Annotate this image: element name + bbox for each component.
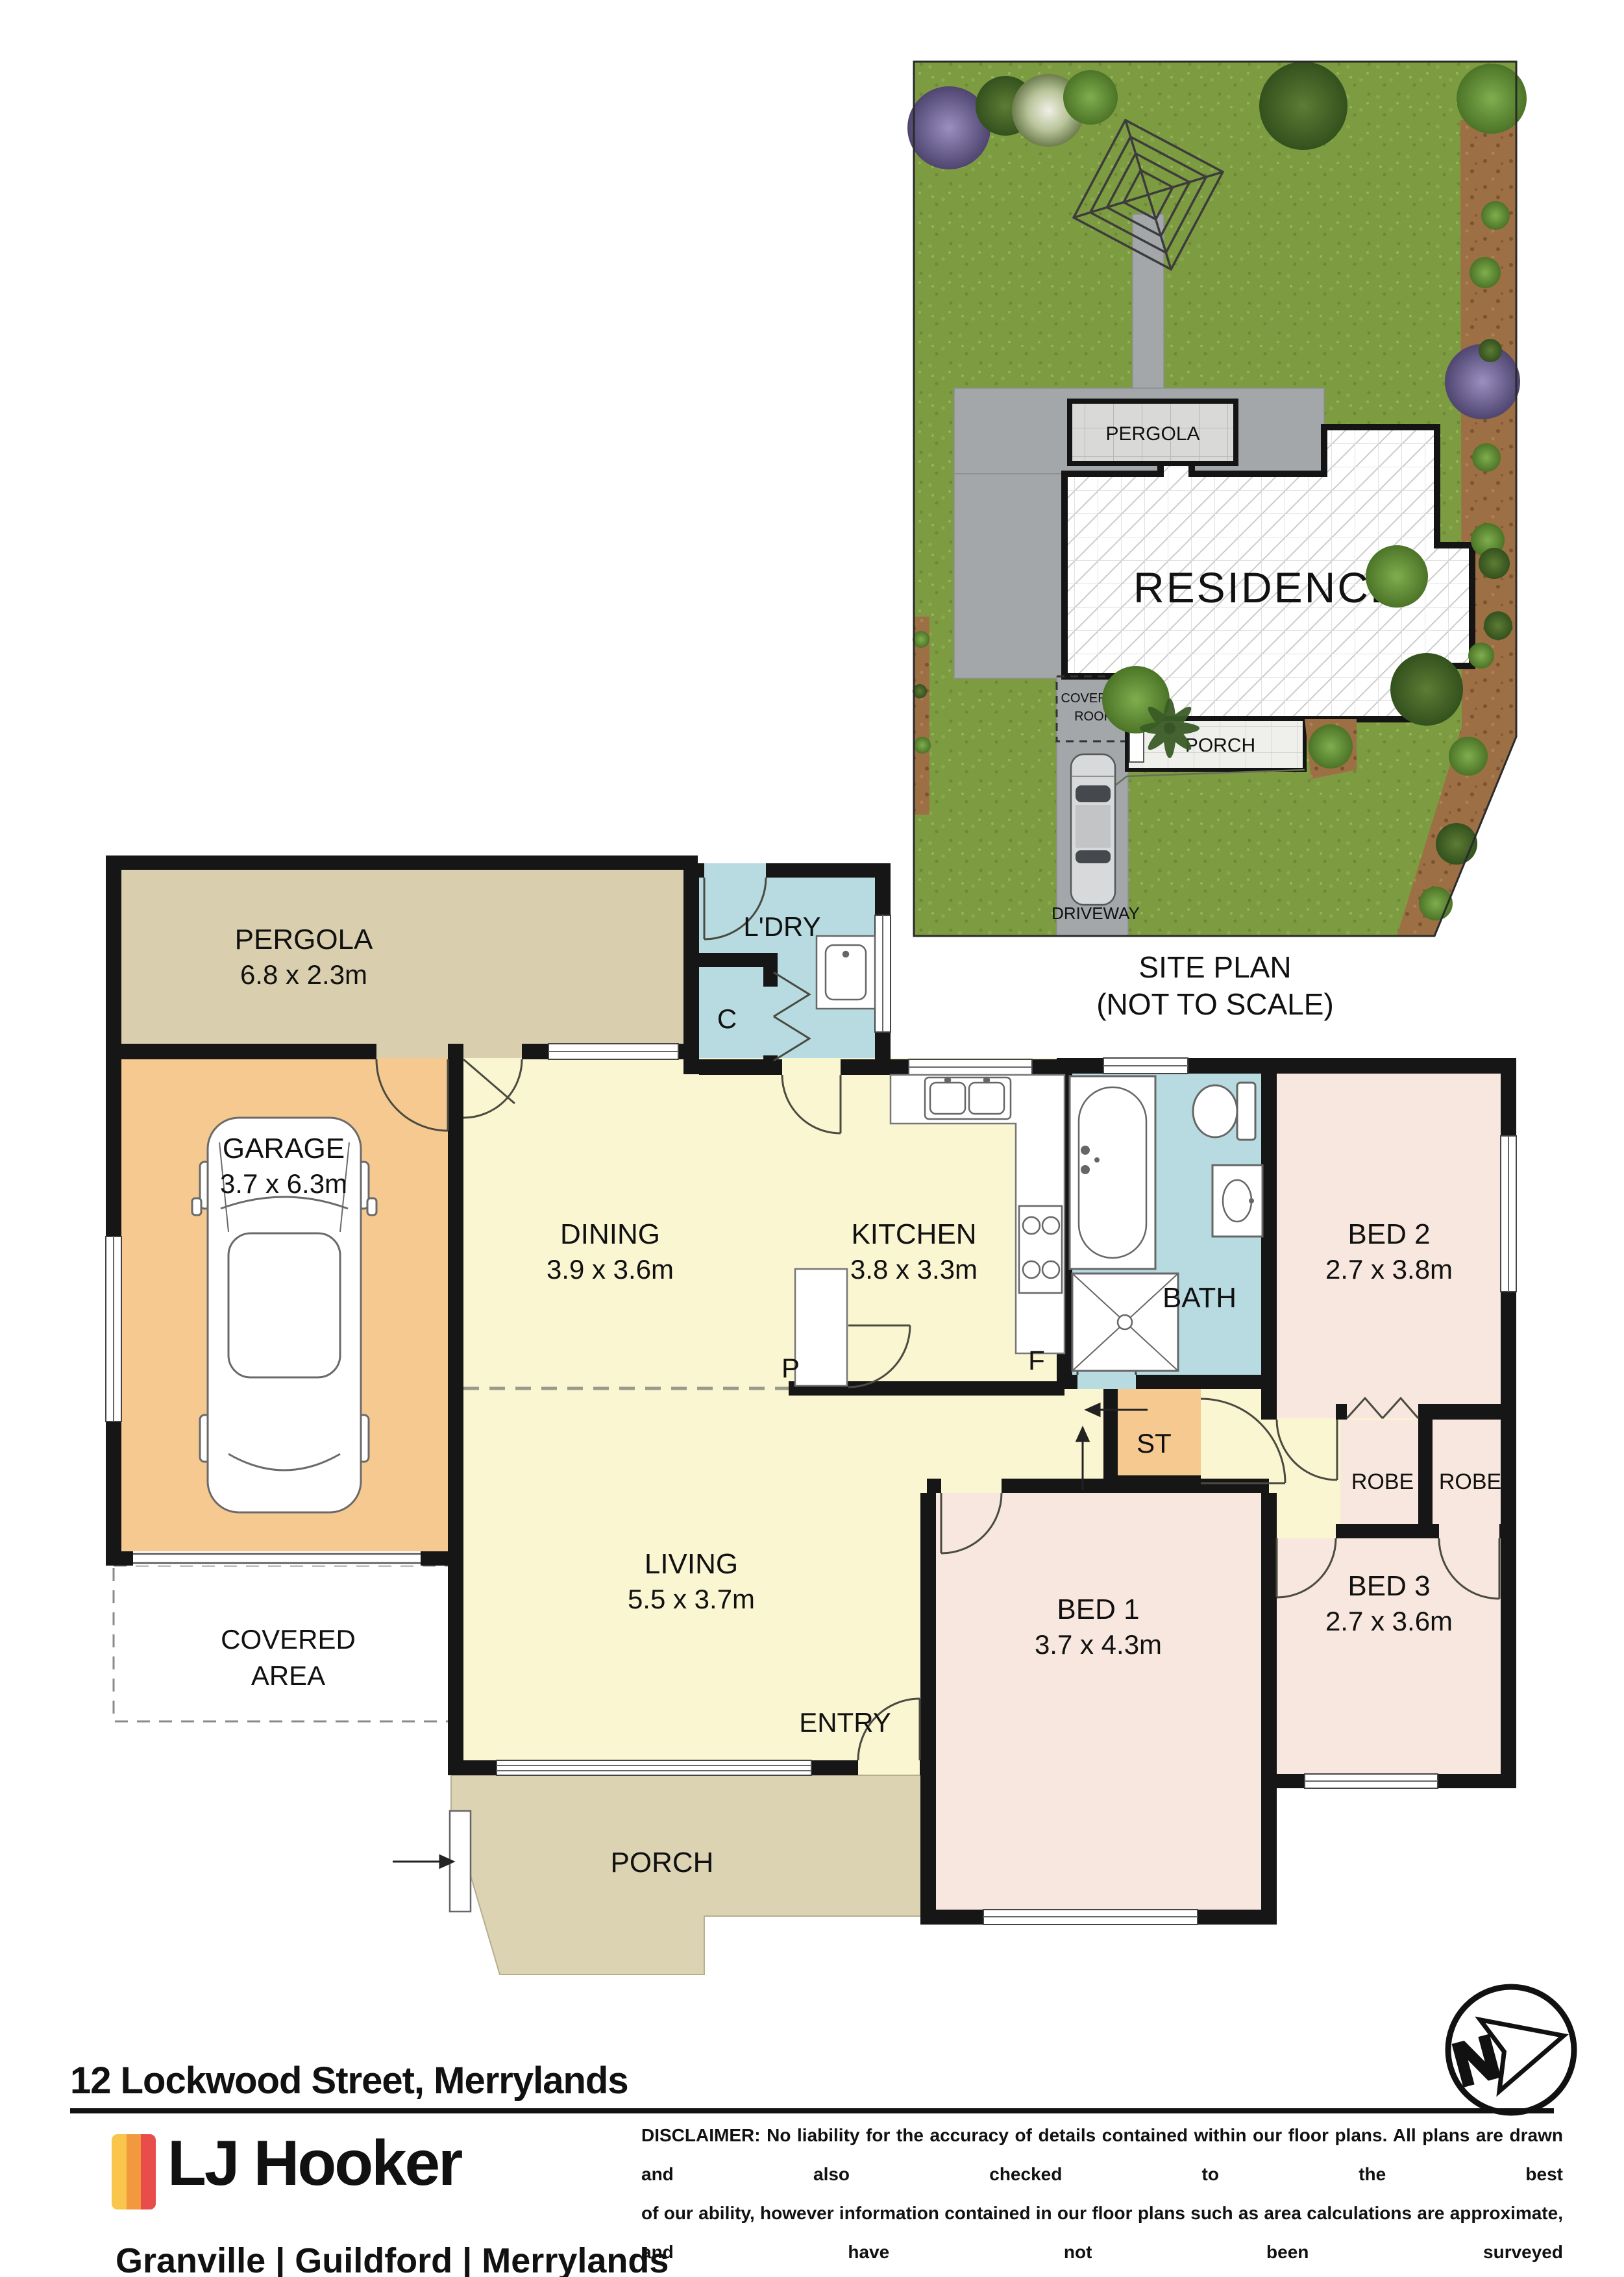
label-bath: BATH — [1163, 1282, 1236, 1314]
vanity-icon — [1212, 1165, 1262, 1237]
floorplan-page: PERGOLA RESIDENCE COVERED ROOF PORCH DRI… — [0, 0, 1624, 2277]
label-storage: ST — [1137, 1428, 1172, 1459]
label-garage-dims: 3.7 x 6.3m — [220, 1168, 347, 1199]
label-dining-dims: 3.9 x 3.6m — [547, 1254, 674, 1285]
label-living-dims: 5.5 x 3.7m — [628, 1584, 755, 1614]
logo-stripe-orange — [127, 2134, 141, 2209]
site-plan-caption-1: SITE PLAN — [1138, 950, 1291, 984]
disclaimer-text: DISCLAIMER: No liability for the accurac… — [641, 2116, 1563, 2277]
label-living: LIVING — [645, 1548, 738, 1580]
label-fridge: F — [1028, 1345, 1045, 1375]
brand-name: LJ Hooker — [167, 2126, 461, 2200]
label-porch: PORCH — [611, 1847, 714, 1878]
site-driveway-label: DRIVEWAY — [1052, 904, 1140, 923]
label-cupboard: C — [717, 1003, 737, 1034]
site-porch-label: PORCH — [1185, 735, 1255, 756]
site-plan: PERGOLA RESIDENCE COVERED ROOF PORCH DRI… — [907, 62, 1527, 1021]
tree-icon — [1390, 653, 1463, 726]
label-covered-1: COVERED — [221, 1624, 356, 1655]
disclaimer-line: DISCLAIMER: No liability for the accurac… — [641, 2116, 1563, 2194]
ljhooker-logo-icon — [112, 2134, 156, 2209]
label-bed1-dims: 3.7 x 4.3m — [1035, 1629, 1162, 1660]
page-title: 12 Lockwood Street, Merrylands — [70, 2059, 628, 2102]
label-dining: DINING — [560, 1218, 660, 1250]
logo-stripe-red — [141, 2134, 156, 2209]
site-pergola-label: PERGOLA — [1105, 423, 1200, 445]
plan-drawing: PERGOLA RESIDENCE COVERED ROOF PORCH DRI… — [0, 0, 1624, 2277]
tree-icon — [1063, 70, 1118, 125]
kitchen-sink-icon — [925, 1077, 1011, 1119]
tree-icon — [1366, 545, 1428, 608]
label-garage: GARAGE — [223, 1133, 345, 1164]
divider-rule — [70, 2108, 1554, 2113]
label-bed2-dims: 2.7 x 3.8m — [1325, 1254, 1453, 1285]
palm-tree-icon — [1140, 698, 1200, 758]
bathtub-icon — [1070, 1076, 1155, 1269]
laundry-tub-icon — [817, 936, 875, 1009]
label-covered-2: AREA — [251, 1660, 325, 1691]
label-pergola-dims: 6.8 x 2.3m — [240, 959, 367, 990]
room-bed1 — [927, 1493, 1269, 1925]
label-entry: ENTRY — [799, 1707, 891, 1738]
label-robe2: ROBE — [1439, 1470, 1501, 1494]
disclaimer-line: of our ability, however information cont… — [641, 2194, 1563, 2272]
north-compass-icon: N — [1446, 1987, 1574, 2113]
label-pergola: PERGOLA — [235, 924, 373, 955]
logo-stripe-yellow — [112, 2134, 127, 2209]
site-residence-label: RESIDENCE — [1133, 563, 1401, 611]
label-robe1: ROBE — [1351, 1470, 1414, 1494]
label-bed3: BED 3 — [1347, 1570, 1430, 1602]
toilet-icon — [1193, 1083, 1255, 1140]
label-kitchen: KITCHEN — [851, 1218, 976, 1250]
room-pergola — [106, 855, 698, 1058]
disclaimer-line: or drawn to scale. Our floor plans are f… — [641, 2272, 1563, 2277]
site-plan-caption-2: (NOT TO SCALE) — [1096, 987, 1334, 1021]
label-bed2: BED 2 — [1347, 1218, 1430, 1250]
floor-plan: PERGOLA 6.8 x 2.3m L'DRY C GARAGE 3.7 x … — [106, 855, 1516, 1975]
pantry-box — [795, 1269, 847, 1386]
label-laundry: L'DRY — [743, 911, 820, 942]
cooktop-icon — [1019, 1206, 1062, 1293]
office-locations: Granville | Guildford | Merrylands — [116, 2241, 669, 2277]
label-pantry: P — [781, 1353, 800, 1383]
label-bed1: BED 1 — [1057, 1594, 1139, 1625]
label-kitchen-dims: 3.8 x 3.3m — [850, 1254, 978, 1285]
tree-icon — [1259, 62, 1347, 150]
car-icon-site — [1071, 754, 1115, 905]
label-bed3-dims: 2.7 x 3.6m — [1325, 1606, 1453, 1636]
